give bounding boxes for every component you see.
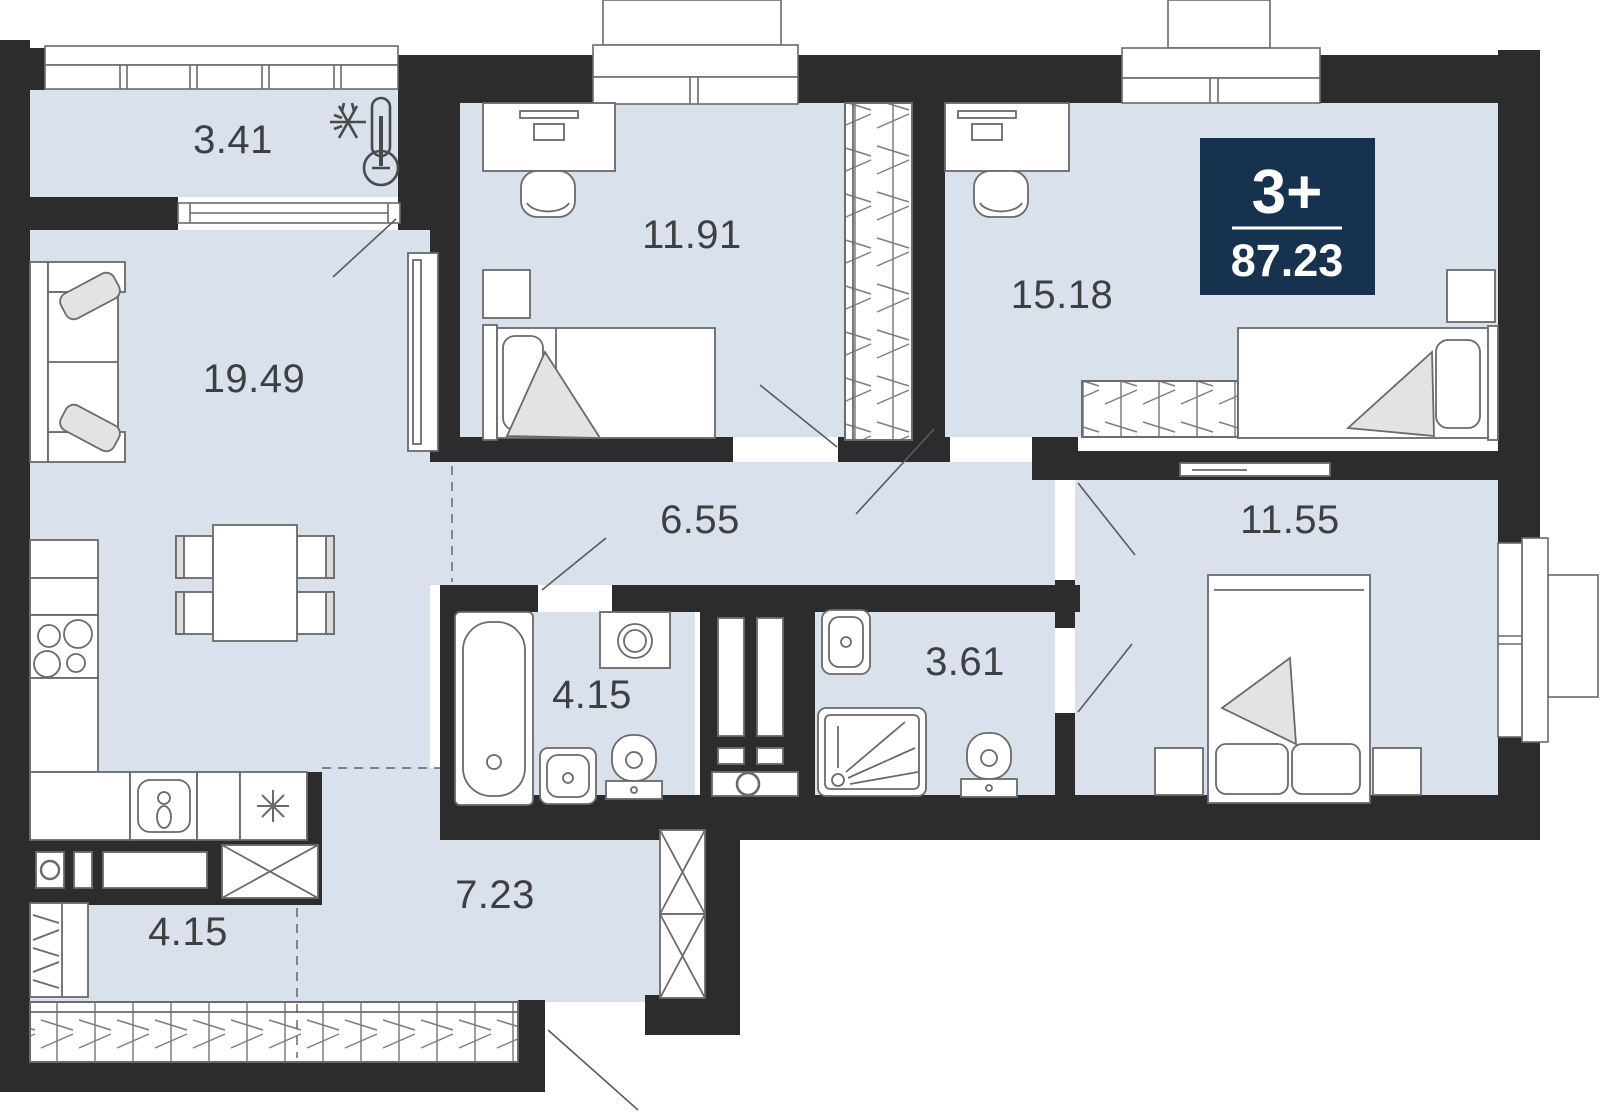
pillow [1292,744,1360,794]
tv-panel [408,253,438,451]
sofa [30,262,125,462]
area-label-living-kitchen: 19.49 [203,357,306,401]
desk-chair [974,171,1028,217]
closet-shelf [30,903,88,997]
floor-plan-page: 3.41 19.49 11.91 15.18 6.55 11.55 4.15 3… [0,0,1600,1112]
hall-wardrobe [30,1002,518,1062]
bed-headboard [1488,326,1498,440]
washing-machine [600,612,670,668]
apartment-badge: 3+ 87.23 [1200,138,1375,295]
area-label-bedroom-3: 11.55 [1240,498,1340,542]
room-floor-hallway [297,840,705,1002]
area-label-closet: 4.15 [148,910,228,954]
entrance-door-swing [548,1030,638,1110]
area-label-bedroom-1: 11.91 [642,213,742,257]
toilet [961,733,1017,797]
badge-total-area: 87.23 [1231,235,1344,286]
toilet [606,735,662,799]
hall-shaft [660,830,705,998]
bedroom-3-window [1498,538,1598,742]
area-label-shower-room: 3.61 [925,640,1005,684]
desk-chair [521,171,575,217]
room-floor-corridor [430,462,1055,585]
area-label-loggia: 3.41 [193,118,273,162]
bedroom-2-window [1122,0,1320,103]
loggia-door-unit [178,203,400,223]
shower [818,708,926,796]
nightstand [483,270,530,318]
nightstand [1373,748,1421,795]
floor-plan: 3.41 19.49 11.91 15.18 6.55 11.55 4.15 3… [0,0,1600,1112]
bed-headboard [483,325,497,440]
area-label-hallway: 7.23 [455,873,535,917]
nightstand [1447,270,1495,322]
badge-rooms-count: 3+ [1252,158,1323,227]
bathtub [455,612,533,805]
pillow [1216,744,1288,794]
area-label-bedroom-2: 15.18 [1011,273,1114,317]
bedroom-1-window [593,0,798,104]
sink [540,748,596,804]
area-label-bathroom: 4.15 [552,673,632,717]
pillow [1436,340,1480,428]
nightstand [1155,748,1203,795]
loggia-window [45,46,398,89]
area-label-corridor: 6.55 [660,498,740,542]
